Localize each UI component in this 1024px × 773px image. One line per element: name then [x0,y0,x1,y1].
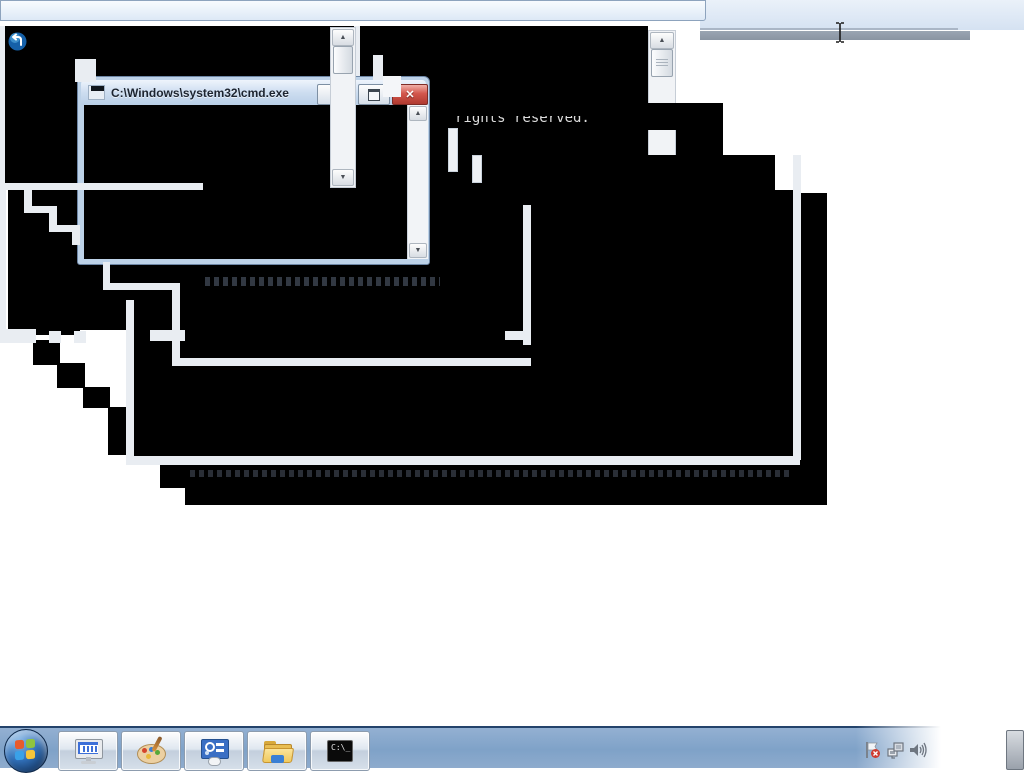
taskbar: C:\_ [0,726,1024,768]
cmd-app-icon [88,85,105,100]
background-scrollbar[interactable]: ▲ ▼ [330,27,356,188]
top-strip-left [0,0,706,21]
action-center-flag-icon[interactable] [862,740,882,760]
volume-icon[interactable] [908,740,928,760]
faint-console-text [190,470,790,477]
scroll-down-button[interactable]: ▼ [332,169,354,186]
console-text-clip: rights reserved. [455,116,605,129]
window-right-border [523,205,531,345]
console-window-region[interactable] [640,103,723,130]
window-border-fragment [383,76,401,97]
command-prompt-icon: C:\_ [327,740,353,762]
desktop: { "window": { "title": "C:\\Windows\\sys… [0,0,1024,768]
taskbar-button-ease-of-access[interactable] [184,731,244,771]
scroll-down-button[interactable]: ▼ [409,243,427,258]
window-corner-fragment [0,329,36,343]
taskbar-button-paint[interactable] [121,731,181,771]
window-border-fragment [75,59,96,82]
window-border-fragment [0,183,203,190]
text-cursor-ibeam [833,22,847,43]
paint-icon [136,737,166,765]
folder-icon [262,737,292,765]
cmd-console-area[interactable] [84,105,407,259]
window-border-fragment [472,155,482,183]
windows-logo-icon [15,740,24,750]
window-border-fragment [448,128,458,172]
window-border-fragment [72,225,80,245]
taskbar-button-command-prompt[interactable]: C:\_ [310,731,370,771]
ease-of-access-icon [199,737,229,765]
down-arrow-icon: ▼ [340,174,347,181]
network-icon[interactable] [886,740,906,760]
scroll-up-button[interactable]: ▲ [409,106,427,121]
maximize-icon [368,89,380,101]
on-screen-keyboard-icon [73,737,103,765]
window-border-fragment [103,283,180,290]
top-strip-right-edge [700,28,958,30]
cmd-window-title: C:\Windows\system32\cmd.exe [111,86,289,100]
top-strip-right [700,0,1024,30]
windows-logo-icon [15,751,24,761]
border-dot-fragment [74,331,86,343]
console-rights-text: rights reserved. [455,116,605,126]
border-dot-fragment [49,331,61,343]
window-bottom-border [172,358,531,366]
taskbar-button-windows-explorer[interactable] [247,731,307,771]
window-border-fragment [0,184,6,335]
console-step [33,340,60,365]
blue-arrow-icon [8,32,27,51]
windows-logo-icon [26,750,35,760]
window-left-border [126,300,134,465]
scroll-thumb[interactable] [651,49,673,77]
up-arrow-icon: ▲ [340,34,347,41]
windows-logo-icon [26,739,35,749]
up-arrow-icon: ▲ [415,110,422,117]
cmd-scrollbar[interactable]: ▲ ▼ [407,105,428,259]
console-step [57,363,85,388]
console-window-region[interactable] [185,460,827,505]
console-step [108,407,126,455]
scroll-up-button[interactable]: ▲ [650,32,674,49]
scroll-up-button[interactable]: ▲ [332,29,354,46]
show-desktop-button[interactable] [1006,730,1024,770]
window-border-fragment [172,283,180,366]
console-window-region[interactable] [130,330,793,460]
console-window-region[interactable] [160,465,190,488]
window-border-fragment [505,331,531,340]
console-step [83,387,110,408]
faint-console-text [205,277,440,286]
up-arrow-icon: ▲ [659,37,666,44]
start-button[interactable] [4,729,48,773]
down-arrow-icon: ▼ [415,247,422,254]
window-right-border [793,155,801,460]
thumb-grip-icon [656,59,668,67]
scroll-thumb[interactable] [333,46,353,74]
window-bottom-border [126,456,800,465]
taskbar-button-on-screen-keyboard[interactable] [58,731,118,771]
background-scrollbar[interactable]: ▲ [648,30,676,158]
close-icon: ✕ [405,88,414,101]
window-border-fragment [373,55,383,80]
window-border-fragment [150,330,185,341]
cmd-window[interactable]: C:\Windows\system32\cmd.exe ✕ ▲ ▼ [77,76,430,265]
